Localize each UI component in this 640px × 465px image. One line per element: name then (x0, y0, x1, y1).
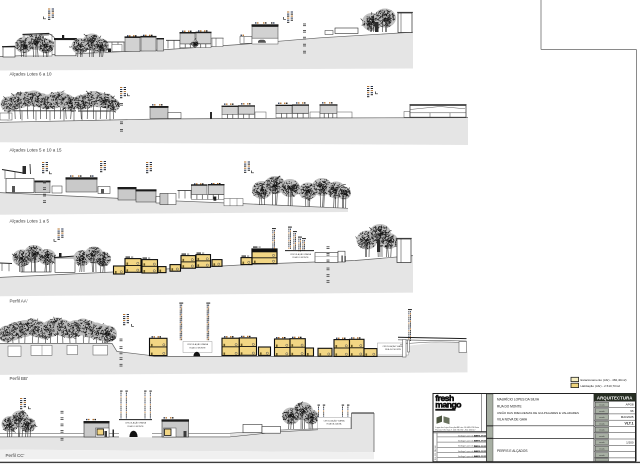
svg-text:ABRIL/2025: ABRIL/2025 (474, 455, 487, 458)
svg-text:escala: escala (599, 405, 604, 407)
svg-text:escala: escala (599, 430, 604, 432)
svg-text:RUA DO MONTE: RUA DO MONTE (292, 256, 309, 259)
svg-text:RUA DO MONTE: RUA DO MONTE (497, 404, 522, 408)
svg-text:VLT.1: VLT.1 (624, 422, 633, 426)
svg-text:ABRIL/2025: ABRIL/2025 (474, 450, 487, 453)
svg-text:UNIÃO DAS FREGUESIAS DE GULPIL: UNIÃO DAS FREGUESIAS DE GULPILHARES E VA… (497, 410, 579, 415)
svg-text:TEL. 223 745 592: TEL. 223 745 592 (435, 445, 437, 460)
svg-text:Estacionamento (Abr) - 482,40m: Estacionamento (Abr) - 482,40m2) (581, 378, 627, 382)
svg-text:RUA DO MONTE: RUA DO MONTE (189, 347, 206, 350)
svg-text:RUA DO MONTE: RUA DO MONTE (385, 348, 402, 351)
svg-text:MAURÍCIO LOPES DA SILVA: MAURÍCIO LOPES DA SILVA (497, 398, 540, 402)
svg-text:CIRCULAÇÃO VIÁRIA: CIRCULAÇÃO VIÁRIA (382, 345, 404, 348)
svg-text:Paraíso V.N. Gaia T. 223 745 5: Paraíso V.N. Gaia T. 223 745 592 - 912 3… (435, 428, 475, 431)
svg-text:VILA NOVA DE GAIA: VILA NOVA DE GAIA (497, 418, 528, 422)
svg-text:Perfil CC': Perfil CC' (6, 453, 25, 458)
svg-text:Habitação (Abr) - 2.510,70m2: Habitação (Abr) - 2.510,70m2 (581, 384, 621, 388)
svg-text:escala: escala (599, 449, 604, 451)
svg-text:ABRIL/2025: ABRIL/2025 (474, 440, 487, 443)
svg-text:96: 96 (630, 409, 634, 413)
svg-text:APG8: APG8 (626, 403, 634, 407)
svg-text:ABRIL/2025: ABRIL/2025 (474, 434, 487, 437)
svg-text:CIRCULAÇÃO VIÁRIA: CIRCULAÇÃO VIÁRIA (290, 253, 312, 256)
svg-text:PERFIS E ALÇADOS: PERFIS E ALÇADOS (497, 449, 527, 453)
svg-text:CIRCULAÇÃO VIÁRIA: CIRCULAÇÃO VIÁRIA (323, 419, 345, 422)
svg-text:mango: mango (435, 400, 461, 410)
svg-text:escala: escala (599, 417, 604, 419)
svg-text:ABRIL/2025: ABRIL/2025 (474, 445, 487, 448)
svg-text:Alçados Lotes 1 a 5: Alçados Lotes 1 a 5 (10, 218, 50, 223)
svg-text:escala: escala (599, 411, 604, 413)
svg-text:Perfil AA': Perfil AA' (10, 298, 28, 303)
svg-text:ARQUITECTURA: ARQUITECTURA (597, 395, 633, 400)
svg-text:RUA DA CALVA: RUA DA CALVA (327, 423, 342, 426)
svg-text:Alçados Lotes 6 a 10: Alçados Lotes 6 a 10 (10, 71, 53, 76)
svg-text:Perfil BB': Perfil BB' (10, 376, 29, 381)
svg-text:CIRCULAÇÃO VIÁRIA: CIRCULAÇÃO VIÁRIA (125, 422, 147, 425)
svg-text:MAI/2025: MAI/2025 (621, 415, 634, 419)
svg-text:escala: escala (599, 436, 604, 438)
svg-text:RUA DO MONTE: RUA DO MONTE (127, 425, 144, 428)
svg-text:Alçados Lotes 5 e 10 a 15: Alçados Lotes 5 e 10 a 15 (10, 148, 63, 153)
svg-text:escala: escala (599, 423, 604, 425)
svg-text:CIRCULAÇÃO VIÁRIA: CIRCULAÇÃO VIÁRIA (187, 343, 209, 346)
svg-text:escala: escala (599, 442, 604, 444)
svg-text:1/200: 1/200 (626, 440, 634, 444)
svg-text:escala: escala (599, 455, 604, 457)
